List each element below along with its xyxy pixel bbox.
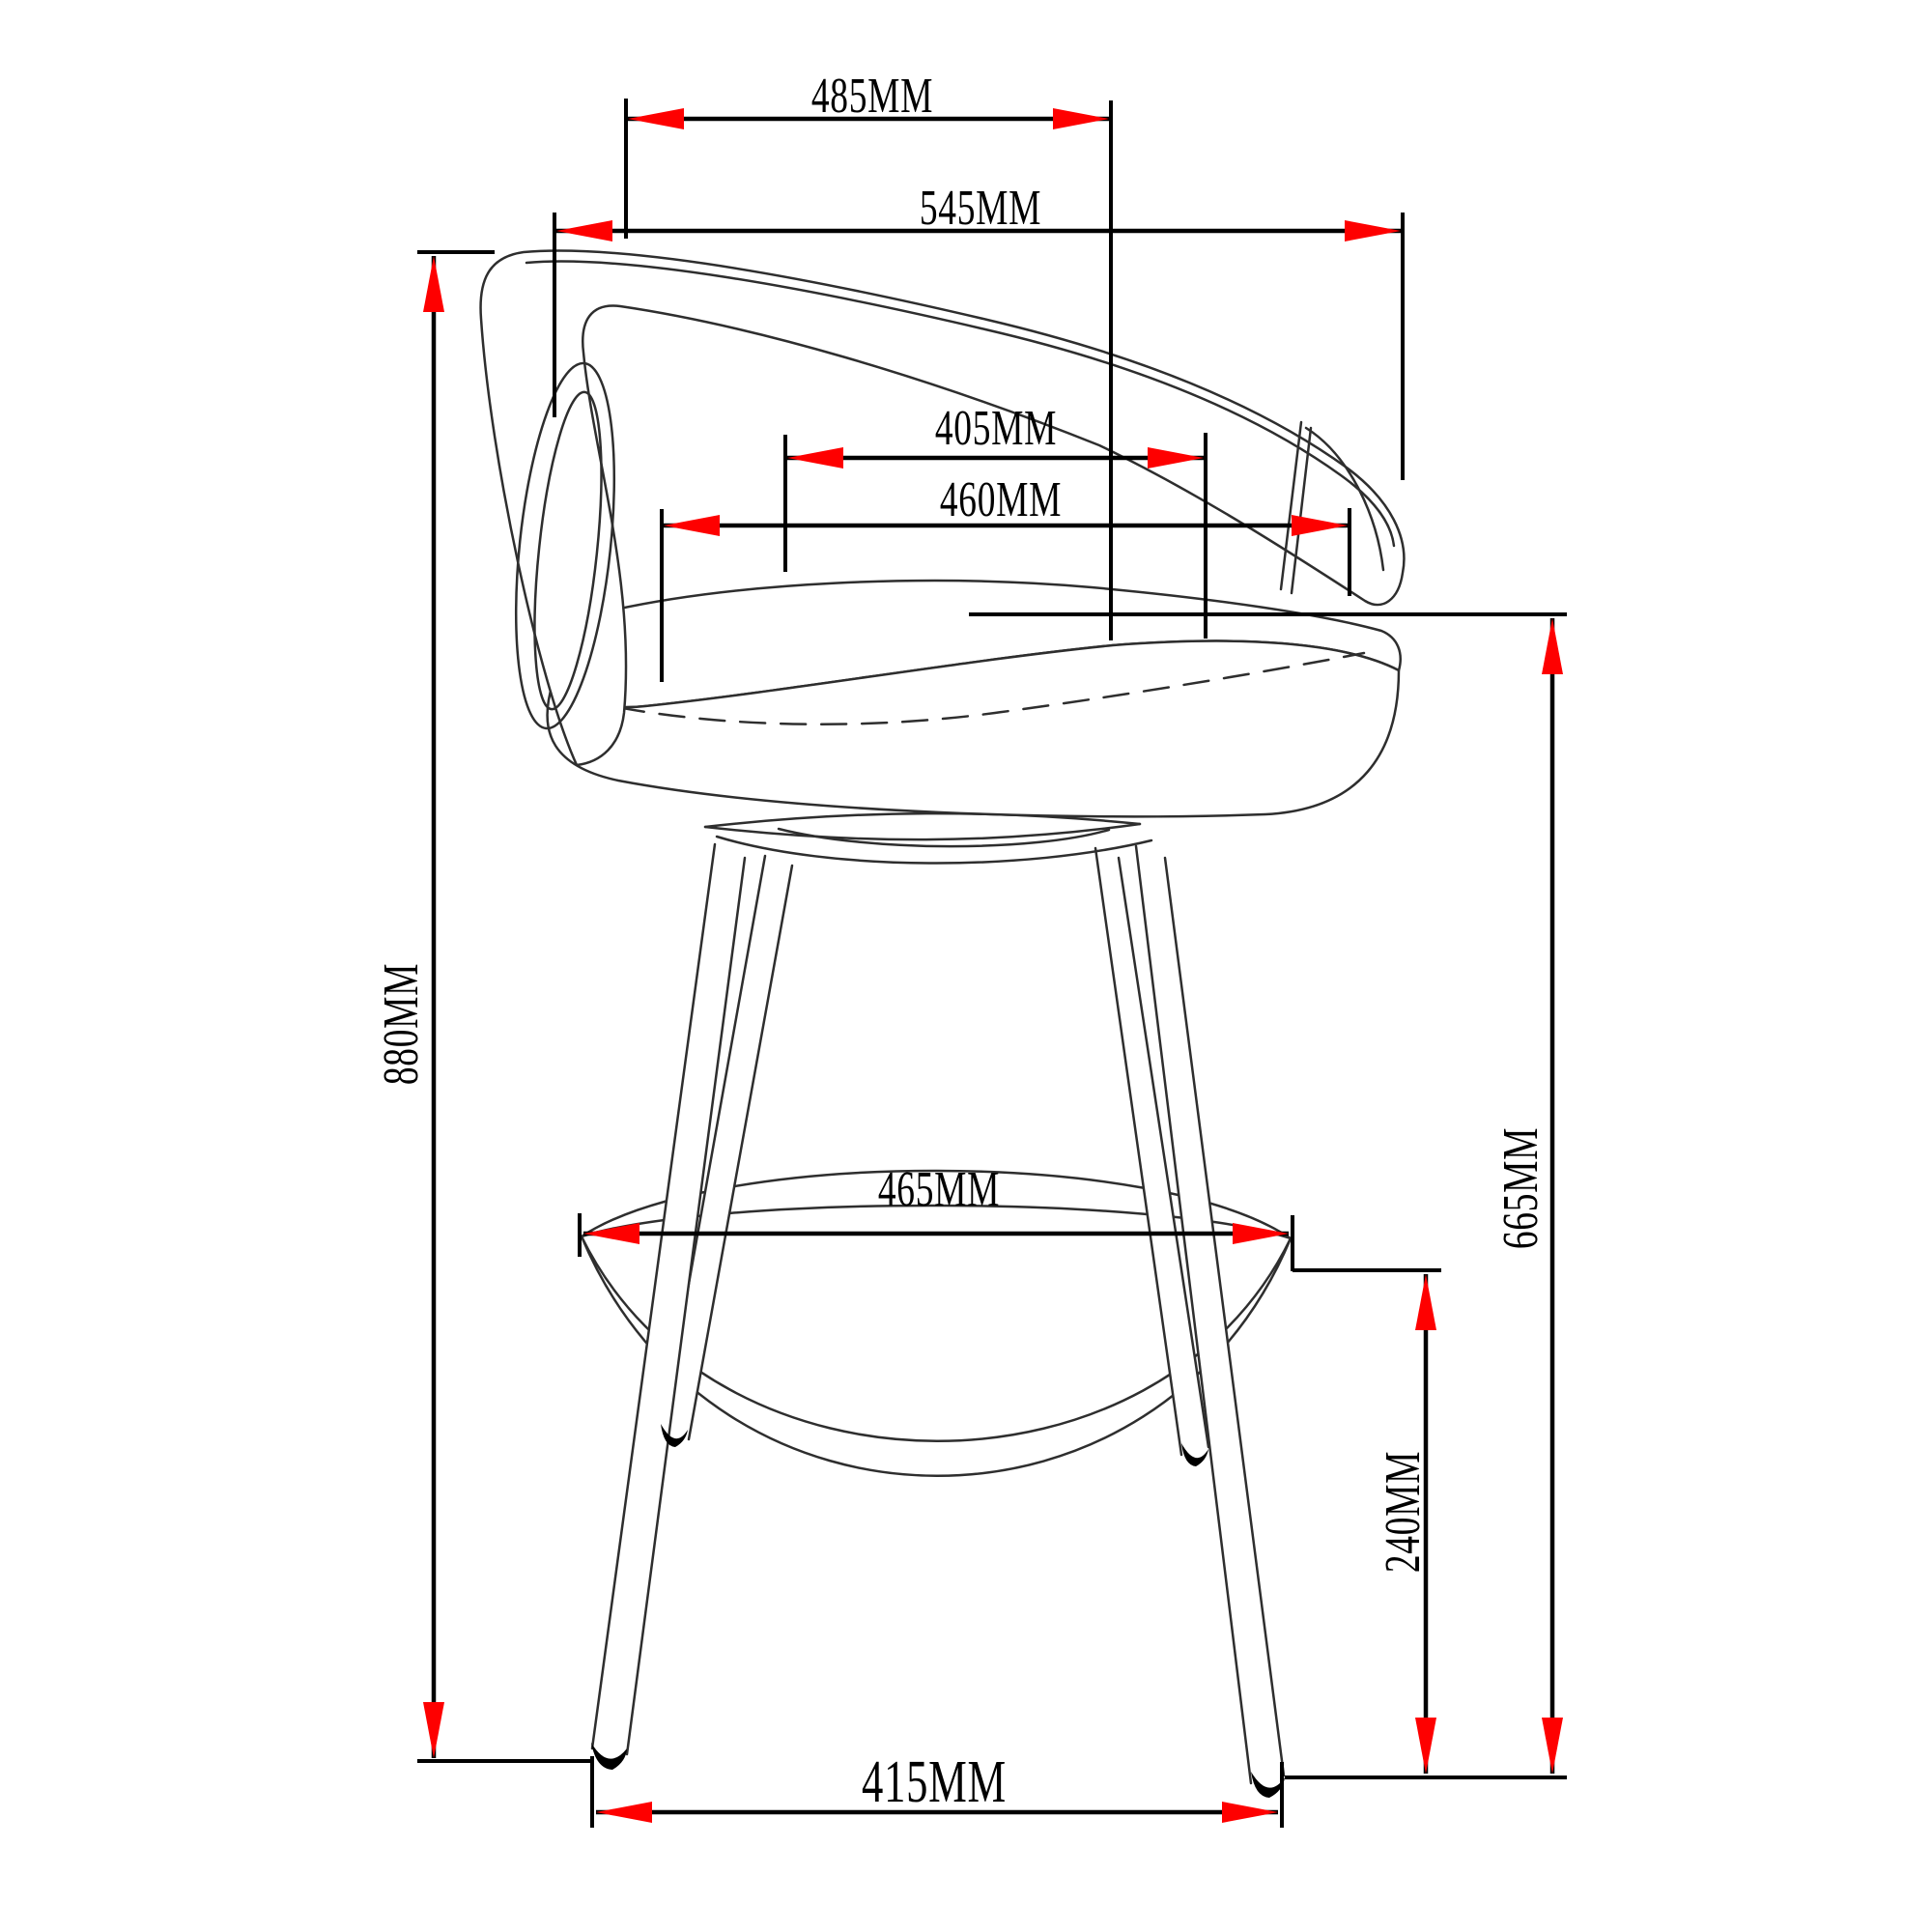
dim-label-415: 415MM xyxy=(862,1752,1007,1812)
arrow-880-down xyxy=(423,1702,444,1758)
arrow-465-right xyxy=(1233,1223,1289,1244)
dim-label-880: 880MM xyxy=(377,963,427,1085)
arrow-240-up xyxy=(1415,1274,1436,1330)
arrow-240-down xyxy=(1415,1718,1436,1774)
dim-label-465: 465MM xyxy=(878,1165,1000,1215)
arrow-485-right xyxy=(1053,108,1109,129)
dim-label-665: 665MM xyxy=(1496,1127,1547,1249)
arrow-545-left xyxy=(556,220,612,241)
dim-label-485: 485MM xyxy=(811,71,933,122)
arrow-545-right xyxy=(1345,220,1401,241)
arrow-465-left xyxy=(583,1223,639,1244)
arrow-880-up xyxy=(423,256,444,312)
dim-label-545: 545MM xyxy=(920,184,1041,234)
arrow-415-right xyxy=(1222,1802,1278,1823)
foot-caps xyxy=(591,1424,1285,1798)
arrow-415-left xyxy=(596,1802,652,1823)
arrow-665-up xyxy=(1542,618,1563,674)
dim-label-405: 405MM xyxy=(935,404,1057,454)
swivel-frame xyxy=(705,813,1151,863)
stool-dimension-drawing xyxy=(0,0,1932,1932)
arrow-460-left xyxy=(664,515,720,536)
arrow-405-left xyxy=(787,447,843,469)
arrow-665-down xyxy=(1542,1718,1563,1774)
dim-label-460: 460MM xyxy=(940,475,1062,526)
arrow-485-left xyxy=(628,108,684,129)
dim-label-240: 240MM xyxy=(1378,1451,1429,1573)
technical-drawing-canvas: 485MM 545MM 405MM 460MM 880MM 665MM 465M… xyxy=(0,0,1932,1932)
front-right-leg xyxy=(1136,846,1284,1783)
